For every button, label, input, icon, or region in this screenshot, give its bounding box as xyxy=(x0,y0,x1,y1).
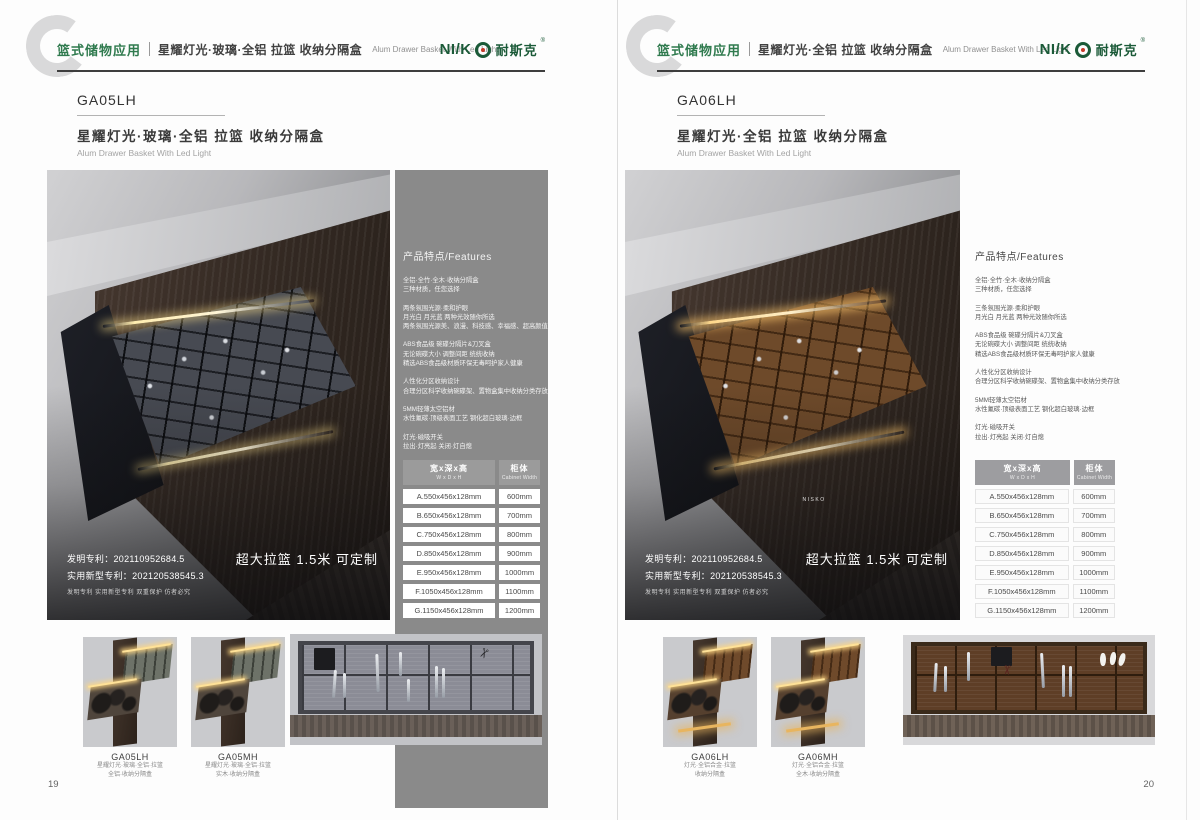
header-divider xyxy=(149,42,150,56)
topview-floor xyxy=(290,715,542,737)
page-number: 19 xyxy=(48,779,59,790)
product-underline xyxy=(677,115,825,116)
cutlery-shape xyxy=(343,673,346,698)
feature-group: 两条氛围光源·柔和护眼 月光白 月光蓝 两种光效随你所选 两条氛围光源美、浪漫、… xyxy=(403,304,548,332)
cabinet-width-cell: 600mm xyxy=(499,489,540,504)
nisko-logo: NI/K 耐斯克 ® xyxy=(440,40,545,59)
topview-tray: ✂ xyxy=(911,642,1148,715)
product-title-en: Alum Drawer Basket With Led Light xyxy=(677,148,889,158)
cabinet-width-cell: 1200mm xyxy=(499,603,540,618)
cabinet-width-cell: 900mm xyxy=(1073,546,1115,561)
header-rule xyxy=(57,70,545,72)
size-table: 宽x深x高 W x D x H 柜体 Cabinet Width A.550x4… xyxy=(975,460,1115,618)
cutlery-shape xyxy=(1069,666,1072,696)
chopsticks-shape xyxy=(314,648,335,670)
thumbnail-code: GA06LH xyxy=(663,752,757,762)
patent-note: 发明专利 实用新型专利 双重保护 仿者必究 xyxy=(645,587,782,596)
size-table-row: G.1150x456x128mm 1200mm xyxy=(975,603,1115,618)
logo-registered-mark: ® xyxy=(1141,38,1145,44)
cabinet-width-cell: 1200mm xyxy=(1073,603,1115,618)
thumbnail-code: GA06MH xyxy=(771,752,865,762)
thumbnail-caption: 实木·收纳分隔盒 xyxy=(191,771,285,780)
size-table-header: 宽x深x高 W x D x H 柜体 Cabinet Width xyxy=(403,460,540,485)
cabinet-width-cell: 600mm xyxy=(1073,489,1115,504)
thumbnail-caption: 收纳分隔盒 xyxy=(663,771,757,780)
header-divider xyxy=(749,42,750,56)
page-gutter-line xyxy=(617,0,618,820)
size-table-row: C.750x456x128mm 800mm xyxy=(975,527,1115,542)
size-cell: D.850x456x128mm xyxy=(403,546,495,561)
cutlery-shape xyxy=(1062,665,1065,697)
spoon-shape xyxy=(1100,653,1106,666)
product-underline xyxy=(77,115,225,116)
header-category: 篮式储物应用 xyxy=(57,40,141,59)
feature-group: ABS食品级 碗碟分隔片&刀叉盒 无论碗碟大小 调整间距 统统收纳 精选ABS食… xyxy=(975,331,1140,359)
cabinet-column-en: Cabinet Width xyxy=(1074,475,1115,481)
cabinet-width-cell: 800mm xyxy=(499,527,540,542)
size-table-body: A.550x456x128mm 600mm B.650x456x128mm 70… xyxy=(403,489,540,618)
features-heading: 产品特点/Features xyxy=(403,248,548,263)
thumbnail-caption: 全木·收纳分隔盒 xyxy=(771,771,865,780)
logo-cn-text: 耐斯克 xyxy=(1096,40,1138,59)
thumbnail-caption: 星耀灯光·玻璃·全铝·拉篮 xyxy=(83,762,177,771)
cabinet-width-cell: 1100mm xyxy=(1073,584,1115,599)
header-title-cn: 星耀灯光·玻璃·全铝 拉篮 收纳分隔盒 xyxy=(158,41,362,58)
size-table-row: B.650x456x128mm 700mm xyxy=(975,508,1115,523)
page-header: 篮式储物应用 星耀灯光·玻璃·全铝 拉篮 收纳分隔盒 Alum Drawer B… xyxy=(57,38,498,60)
product-photo: 发明专利：202110952684.5 实用新型专利：202120538545.… xyxy=(47,170,390,620)
oversize-banner: 超大拉篮 1.5米 可定制 xyxy=(236,549,378,568)
thumbnail-row: GA06LH 灯光·全铝合金·拉篮 收纳分隔盒 GA06MH 灯光·全铝合金·拉… xyxy=(663,637,865,780)
size-table-row: B.650x456x128mm 700mm xyxy=(403,508,540,523)
scissors-icon: ✂ xyxy=(998,664,1015,676)
size-column-en: W x D x H xyxy=(975,475,1070,481)
feature-group: 灯光·磁吸开关 拉出·灯亮起 关闭·灯自熄 xyxy=(975,423,1140,442)
size-cell: F.1050x456x128mm xyxy=(403,584,495,599)
size-cell: C.750x456x128mm xyxy=(975,527,1069,542)
header-rule xyxy=(657,70,1145,72)
topview-compartments xyxy=(915,646,1144,711)
feature-group: 人性化分区收纳设计 合理分区科学收纳碗碟架、置物盒集中收纳分类存放 xyxy=(975,368,1140,387)
size-cell: E.950x456x128mm xyxy=(975,565,1069,580)
cutlery-shape xyxy=(399,652,402,675)
size-cell: A.550x456x128mm xyxy=(975,489,1069,504)
catalog-spread: 篮式储物应用 星耀灯光·玻璃·全铝 拉篮 收纳分隔盒 Alum Drawer B… xyxy=(0,0,1200,820)
product-heading: GA05LH 星耀灯光·玻璃·全铝 拉篮 收纳分隔盒 Alum Drawer B… xyxy=(77,92,325,158)
feature-group: 5MM轻薄太空铝材 水性氟碳·顶级表面工艺 钢化超白玻璃·边框 xyxy=(403,405,548,424)
product-title-en: Alum Drawer Basket With Led Light xyxy=(77,148,325,158)
thumbnail-caption: 全铝·收纳分隔盒 xyxy=(83,771,177,780)
cabinet-column-header: 柜体 Cabinet Width xyxy=(499,460,540,485)
product-thumbnail: GA05MH 星耀灯光·玻璃·全铝·拉篮 实木·收纳分隔盒 xyxy=(191,637,285,780)
page-header: 篮式储物应用 星耀灯光·全铝 拉篮 收纳分隔盒 Alum Drawer Bask… xyxy=(657,38,1069,60)
product-thumbnail: GA06MH 灯光·全铝合金·拉篮 全木·收纳分隔盒 xyxy=(771,637,865,780)
size-column-en: W x D x H xyxy=(403,475,495,481)
logo-o-icon xyxy=(475,42,491,58)
feature-group: ABS食品级 碗碟分隔片&刀叉盒 无论碗碟大小 调整间距 统统收纳 精选ABS食… xyxy=(403,340,548,368)
features-list: 全铝·全竹·全木·收纳分隔盒 三种材质，任您选择 两条氛围光源·柔和护眼 月光白… xyxy=(403,276,548,451)
size-table-row: D.850x456x128mm 900mm xyxy=(975,546,1115,561)
cabinet-width-cell: 700mm xyxy=(499,508,540,523)
size-table-row: A.550x456x128mm 600mm xyxy=(975,489,1115,504)
thumbnail-caption: 灯光·全铝合金·拉篮 xyxy=(771,762,865,771)
thumbnail-code: GA05LH xyxy=(83,752,177,762)
feature-group: 全铝·全竹·全木·收纳分隔盒 三种材质，任您选择 xyxy=(403,276,548,295)
cutlery-shape xyxy=(435,666,438,698)
oversize-banner: 超大拉篮 1.5米 可定制 xyxy=(806,549,948,568)
catalog-page-left: 篮式储物应用 星耀灯光·玻璃·全铝 拉篮 收纳分隔盒 Alum Drawer B… xyxy=(0,0,600,820)
size-table-row: F.1050x456x128mm 1100mm xyxy=(975,584,1115,599)
header-category: 篮式储物应用 xyxy=(657,40,741,59)
cabinet-column-cn: 柜体 xyxy=(1074,463,1115,474)
patent-text: 发明专利：202110952684.5 实用新型专利：202120538545.… xyxy=(67,551,204,596)
size-column-cn: 宽x深x高 xyxy=(403,463,495,474)
nisko-logo: NI/K 耐斯克 ® xyxy=(1040,40,1145,59)
logo-latin-text: NI/K xyxy=(440,41,472,58)
catalog-page-right: 篮式储物应用 星耀灯光·全铝 拉篮 收纳分隔盒 Alum Drawer Bask… xyxy=(600,0,1200,820)
cutlery-shape xyxy=(442,668,445,697)
thumbnail-caption: 星耀灯光·玻璃·全铝·拉篮 xyxy=(191,762,285,771)
cabinet-width-cell: 1000mm xyxy=(1073,565,1115,580)
size-table-header: 宽x深x高 W x D x H 柜体 Cabinet Width xyxy=(975,460,1115,485)
size-cell: B.650x456x128mm xyxy=(975,508,1069,523)
size-table-row: E.950x456x128mm 1000mm xyxy=(975,565,1115,580)
cabinet-column-en: Cabinet Width xyxy=(499,475,540,481)
logo-cn-text: 耐斯克 xyxy=(496,40,538,59)
product-title-cn: 星耀灯光·玻璃·全铝 拉篮 收纳分隔盒 xyxy=(77,125,325,145)
feature-group: 人性化分区收纳设计 合理分区科学收纳碗碟架、置物盒集中收纳分类存放 xyxy=(403,377,548,396)
thumbnail-image xyxy=(663,637,757,747)
size-table-row: C.750x456x128mm 800mm xyxy=(403,527,540,542)
logo-o-icon xyxy=(1075,42,1091,58)
size-table-row: D.850x456x128mm 900mm xyxy=(403,546,540,561)
topview-floor xyxy=(903,715,1155,737)
thumbnail-image xyxy=(191,637,285,747)
size-cell: A.550x456x128mm xyxy=(403,489,495,504)
thumbnail-code: GA05MH xyxy=(191,752,285,762)
cabinet-width-cell: 900mm xyxy=(499,546,540,561)
logo-latin-text: NI/K xyxy=(1040,41,1072,58)
size-table-row: A.550x456x128mm 600mm xyxy=(403,489,540,504)
features-list: 全铝·全竹·全木·收纳分隔盒 三种材质，任您选择 三条氛围光源·柔和护眼 月光白… xyxy=(975,276,1140,442)
logo-registered-mark: ® xyxy=(541,38,545,44)
drawer-brand-mark: NISKO xyxy=(803,497,826,503)
size-table-body: A.550x456x128mm 600mm B.650x456x128mm 70… xyxy=(975,489,1115,618)
page-number: 20 xyxy=(1143,779,1154,790)
header-title-cn: 星耀灯光·全铝 拉篮 收纳分隔盒 xyxy=(758,41,933,58)
product-thumbnail: GA06LH 灯光·全铝合金·拉篮 收纳分隔盒 xyxy=(663,637,757,780)
drawer-topview-photo: ✂ xyxy=(903,635,1155,745)
size-column-header: 宽x深x高 W x D x H xyxy=(975,460,1070,485)
cabinet-width-cell: 1000mm xyxy=(499,565,540,580)
thumbnail-caption: 灯光·全铝合金·拉篮 xyxy=(663,762,757,771)
drawer-topview-photo: ✂ xyxy=(290,634,542,745)
cutlery-shape xyxy=(967,652,970,681)
features-section: 产品特点/Features 全铝·全竹·全木·收纳分隔盒 三种材质，任您选择 三… xyxy=(975,248,1140,451)
cabinet-width-cell: 800mm xyxy=(1073,527,1115,542)
feature-group: 灯光·磁吸开关 拉出·灯亮起 关闭·灯自熄 xyxy=(403,433,548,452)
feature-group: 全铝·全竹·全木·收纳分隔盒 三种材质，任您选择 xyxy=(975,276,1140,295)
topview-tray: ✂ xyxy=(298,641,535,714)
size-table-row: F.1050x456x128mm 1100mm xyxy=(403,584,540,599)
page-edge-line xyxy=(1186,0,1187,820)
feature-group: 三条氛围光源·柔和护眼 月光白 月光蓝 两种光效随你所选 xyxy=(975,304,1140,323)
product-photo: NISKO 发明专利：202110952684.5 实用新型专利：2021205… xyxy=(625,170,960,620)
cutlery-shape xyxy=(407,679,410,702)
cabinet-width-cell: 700mm xyxy=(1073,508,1115,523)
patent-line: 实用新型专利：202120538545.3 xyxy=(67,568,204,585)
size-column-cn: 宽x深x高 xyxy=(975,463,1070,474)
size-column-header: 宽x深x高 W x D x H xyxy=(403,460,495,485)
size-cell: G.1150x456x128mm xyxy=(403,603,495,618)
size-cell: F.1050x456x128mm xyxy=(975,584,1069,599)
size-table-row: G.1150x456x128mm 1200mm xyxy=(403,603,540,618)
thumbnail-row: GA05LH 星耀灯光·玻璃·全铝·拉篮 全铝·收纳分隔盒 GA05MH 星耀灯… xyxy=(83,637,285,780)
size-table: 宽x深x高 W x D x H 柜体 Cabinet Width A.550x4… xyxy=(403,460,540,618)
cutlery-shape xyxy=(944,666,947,692)
patent-line: 发明专利：202110952684.5 xyxy=(67,551,204,568)
size-table-row: E.950x456x128mm 1000mm xyxy=(403,565,540,580)
features-section: 产品特点/Features 全铝·全竹·全木·收纳分隔盒 三种材质，任您选择 两… xyxy=(403,248,548,460)
size-cell: G.1150x456x128mm xyxy=(975,603,1069,618)
thumbnail-image xyxy=(83,637,177,747)
product-title-cn: 星耀灯光·全铝 拉篮 收纳分隔盒 xyxy=(677,125,889,145)
product-heading: GA06LH 星耀灯光·全铝 拉篮 收纳分隔盒 Alum Drawer Bask… xyxy=(677,92,889,158)
product-code: GA05LH xyxy=(77,92,325,108)
thumbnail-image xyxy=(771,637,865,747)
product-code: GA06LH xyxy=(677,92,889,108)
size-cell: D.850x456x128mm xyxy=(975,546,1069,561)
feature-group: 5MM轻薄太空铝材 水性氟碳·顶级表面工艺 钢化超白玻璃·边框 xyxy=(975,396,1140,415)
features-heading: 产品特点/Features xyxy=(975,248,1140,263)
size-cell: B.650x456x128mm xyxy=(403,508,495,523)
size-cell: E.950x456x128mm xyxy=(403,565,495,580)
cabinet-width-cell: 1100mm xyxy=(499,584,540,599)
patent-line: 实用新型专利：202120538545.3 xyxy=(645,568,782,585)
cabinet-column-header: 柜体 Cabinet Width xyxy=(1074,460,1115,485)
patent-line: 发明专利：202110952684.5 xyxy=(645,551,782,568)
patent-text: 发明专利：202110952684.5 实用新型专利：202120538545.… xyxy=(645,551,782,596)
size-cell: C.750x456x128mm xyxy=(403,527,495,542)
cabinet-column-cn: 柜体 xyxy=(499,463,540,474)
product-thumbnail: GA05LH 星耀灯光·玻璃·全铝·拉篮 全铝·收纳分隔盒 xyxy=(83,637,177,780)
patent-note: 发明专利 实用新型专利 双重保护 仿者必究 xyxy=(67,587,204,596)
